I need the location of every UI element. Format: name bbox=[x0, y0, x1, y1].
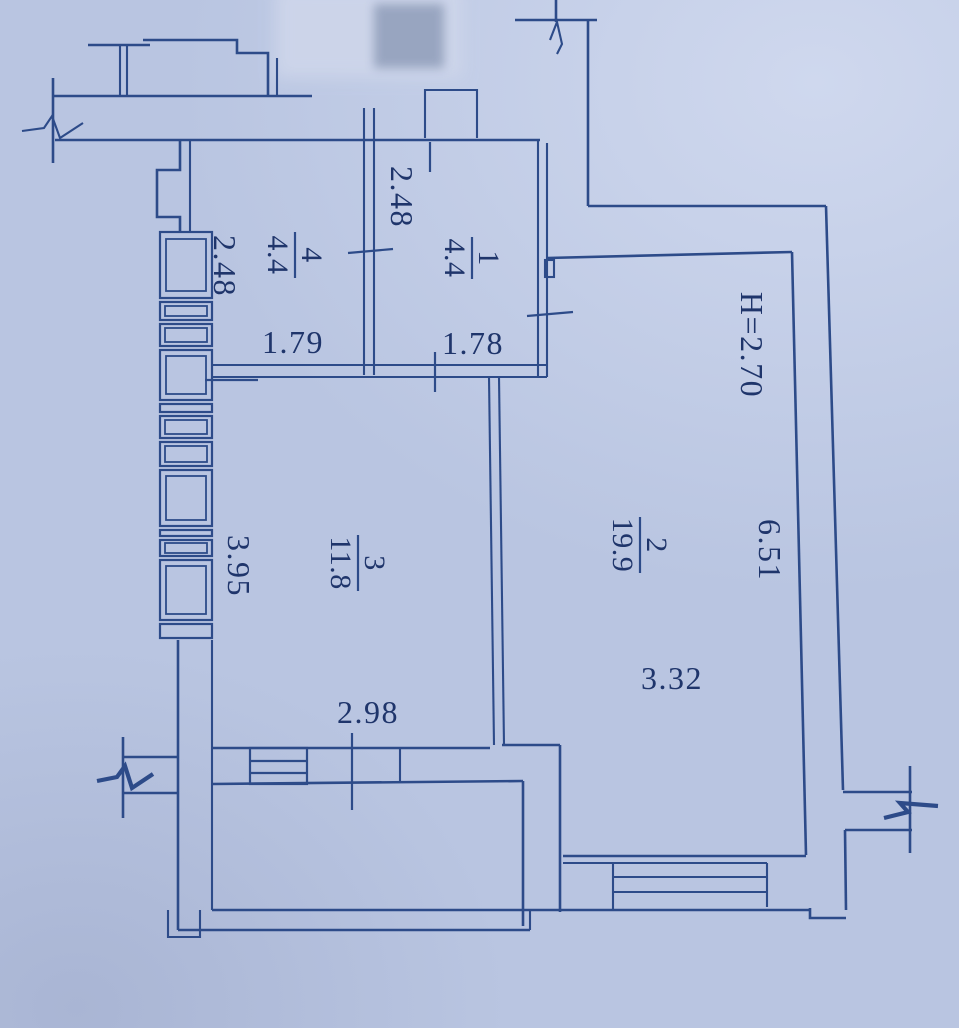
wall-foot bbox=[168, 910, 200, 937]
room3-area: 11.8 bbox=[324, 536, 357, 589]
dim-room1-width: 1.78 bbox=[442, 325, 504, 361]
dim-left-height-text: 3.95 bbox=[221, 535, 257, 597]
dim-room2-width: 3.32 bbox=[641, 660, 703, 696]
window-strip bbox=[160, 232, 212, 638]
wall-step bbox=[810, 908, 846, 918]
window-pane bbox=[160, 302, 212, 320]
adjacent-structure bbox=[53, 40, 312, 96]
window-pane-inner bbox=[166, 356, 206, 394]
window-pane-inner bbox=[165, 446, 207, 462]
break-zigzag bbox=[97, 766, 153, 788]
window-pane bbox=[160, 624, 212, 638]
outer-wall bbox=[826, 206, 843, 790]
room2-right-wall bbox=[792, 252, 806, 855]
window-pane bbox=[160, 232, 212, 298]
room2-number: 2 bbox=[640, 537, 673, 553]
wall-segment bbox=[143, 40, 268, 96]
walls bbox=[55, 20, 912, 937]
dim-ceiling-height: H=2.70 bbox=[734, 292, 770, 398]
window-pane bbox=[160, 350, 212, 400]
room4-number: 4 bbox=[295, 247, 328, 263]
window-pane-inner bbox=[166, 476, 206, 520]
scanned-floor-plan-photo: 2.48 2.48 4 4.4 1 4.4 1.79 1.78 H=2.70 3… bbox=[0, 0, 959, 1028]
break-mark-bottom-left bbox=[97, 737, 153, 818]
vent-shaft bbox=[425, 90, 477, 138]
left-wall bbox=[157, 140, 180, 232]
dim-ceiling-height-text: H=2.70 bbox=[734, 292, 770, 398]
room4-area: 4.4 bbox=[261, 236, 294, 275]
dim-room1-top-width: 2.48 bbox=[384, 166, 420, 228]
dim-room2-length-text: 6.51 bbox=[752, 519, 788, 581]
outer-wall bbox=[845, 830, 846, 910]
dim-left-top-width: 2.48 bbox=[207, 235, 243, 297]
window-pane-inner bbox=[166, 566, 206, 614]
room2-label: 2 19.9 bbox=[606, 517, 673, 573]
break-mark-top bbox=[515, 0, 597, 54]
room3-room2-divider bbox=[499, 377, 504, 745]
window-pane bbox=[160, 470, 212, 526]
dim-bottom-opening: 2.98 bbox=[337, 694, 399, 730]
stairs-bottom bbox=[613, 863, 767, 910]
window-pane bbox=[160, 560, 212, 620]
labels: 2.48 2.48 4 4.4 1 4.4 1.79 1.78 H=2.70 3… bbox=[207, 166, 788, 730]
window-pane-inner bbox=[166, 239, 206, 291]
window-pane-inner bbox=[165, 420, 207, 434]
window-pane bbox=[160, 404, 212, 412]
dim-room1-top-width-text: 2.48 bbox=[384, 166, 420, 228]
room1-label: 1 4.4 bbox=[438, 237, 505, 279]
dim-left-height: 3.95 bbox=[221, 535, 257, 597]
room3-number: 3 bbox=[358, 555, 391, 571]
dim-room4-width: 1.79 bbox=[262, 324, 324, 360]
break-mark-right bbox=[884, 766, 938, 853]
blur-dark-rect bbox=[374, 4, 444, 68]
room2-top-wall bbox=[547, 252, 792, 258]
room1-number: 1 bbox=[472, 250, 505, 266]
stairs-outline bbox=[250, 748, 307, 784]
window-pane-inner bbox=[165, 306, 207, 316]
room3-room2-divider bbox=[489, 377, 494, 745]
window-pane-inner bbox=[165, 543, 207, 553]
room1-area: 4.4 bbox=[438, 239, 471, 278]
floor-plan-drawing: 2.48 2.48 4 4.4 1 4.4 1.79 1.78 H=2.70 3… bbox=[0, 0, 959, 1028]
window-pane-inner bbox=[165, 328, 207, 342]
window-pane bbox=[160, 530, 212, 536]
stairs-upper-left bbox=[250, 748, 307, 784]
room3-label: 3 11.8 bbox=[324, 535, 391, 591]
redaction-blur-patch bbox=[275, 0, 463, 78]
room2-area: 19.9 bbox=[606, 518, 639, 573]
dimension-tick bbox=[527, 312, 573, 316]
dim-room2-length: 6.51 bbox=[752, 519, 788, 581]
break-zigzag bbox=[550, 22, 562, 54]
dimension-tick bbox=[348, 249, 393, 253]
dim-left-top-width-text: 2.48 bbox=[207, 235, 243, 297]
room4-label: 4 4.4 bbox=[261, 232, 328, 278]
break-mark-top-left bbox=[22, 78, 83, 163]
